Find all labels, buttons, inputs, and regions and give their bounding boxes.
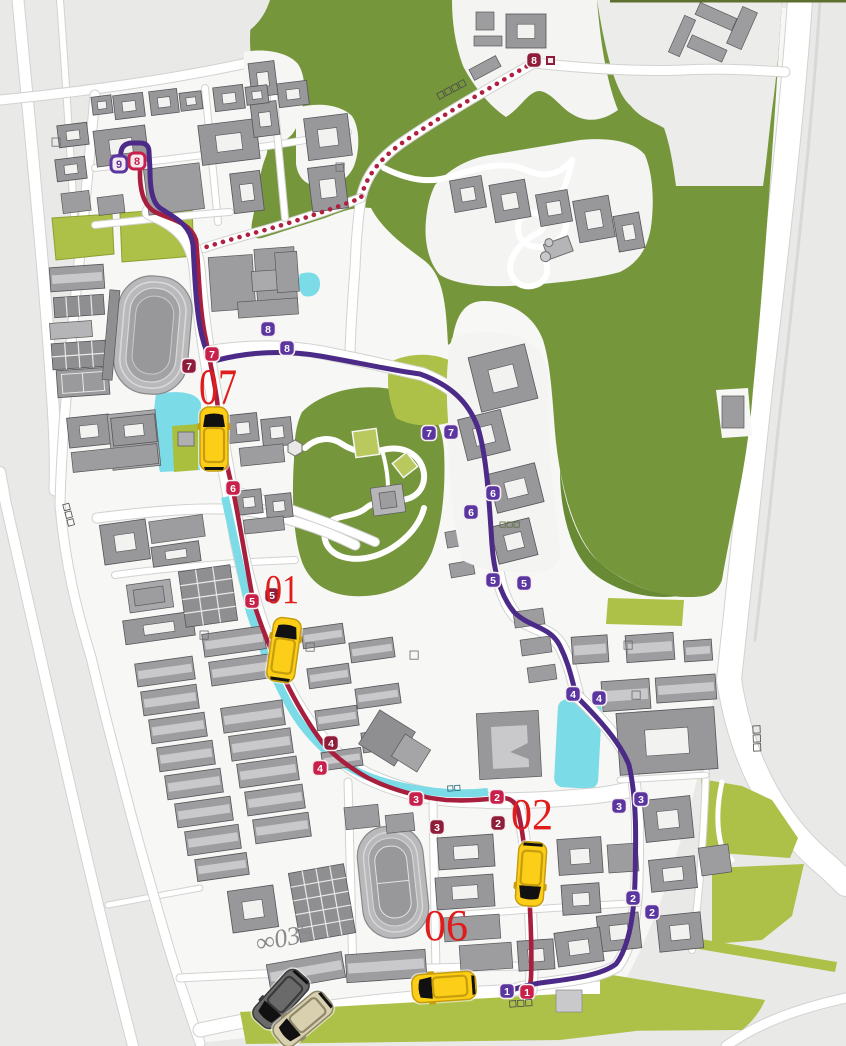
svg-text:3: 3	[434, 822, 440, 834]
svg-text:4: 4	[317, 763, 323, 775]
svg-text:02: 02	[511, 790, 553, 839]
svg-text:9: 9	[116, 159, 122, 171]
svg-text:8: 8	[134, 156, 140, 168]
svg-text:5: 5	[521, 578, 527, 590]
svg-text:2: 2	[495, 818, 501, 830]
svg-text:1: 1	[504, 986, 510, 998]
svg-text:7: 7	[426, 428, 432, 440]
svg-text:3: 3	[616, 801, 622, 813]
svg-text:8: 8	[265, 324, 271, 336]
svg-text:4: 4	[596, 693, 602, 705]
svg-text:8: 8	[284, 343, 290, 355]
svg-text:6: 6	[468, 507, 474, 519]
svg-text:6: 6	[490, 488, 496, 500]
svg-text:4: 4	[328, 738, 334, 750]
svg-text:06: 06	[424, 901, 468, 950]
svg-text:5: 5	[249, 596, 255, 608]
svg-text:7: 7	[448, 427, 454, 439]
svg-text:1: 1	[524, 987, 530, 999]
svg-text:01: 01	[265, 566, 299, 612]
svg-text:2: 2	[494, 792, 500, 804]
svg-text:6: 6	[230, 483, 236, 495]
svg-text:2: 2	[630, 893, 636, 905]
svg-text:8: 8	[531, 55, 537, 67]
svg-text:2: 2	[649, 907, 655, 919]
svg-text:07: 07	[199, 360, 237, 416]
svg-text:3: 3	[413, 794, 419, 806]
svg-text:3: 3	[638, 794, 644, 806]
svg-text:7: 7	[186, 361, 192, 373]
svg-text:5: 5	[490, 575, 496, 587]
svg-text:4: 4	[570, 689, 576, 701]
